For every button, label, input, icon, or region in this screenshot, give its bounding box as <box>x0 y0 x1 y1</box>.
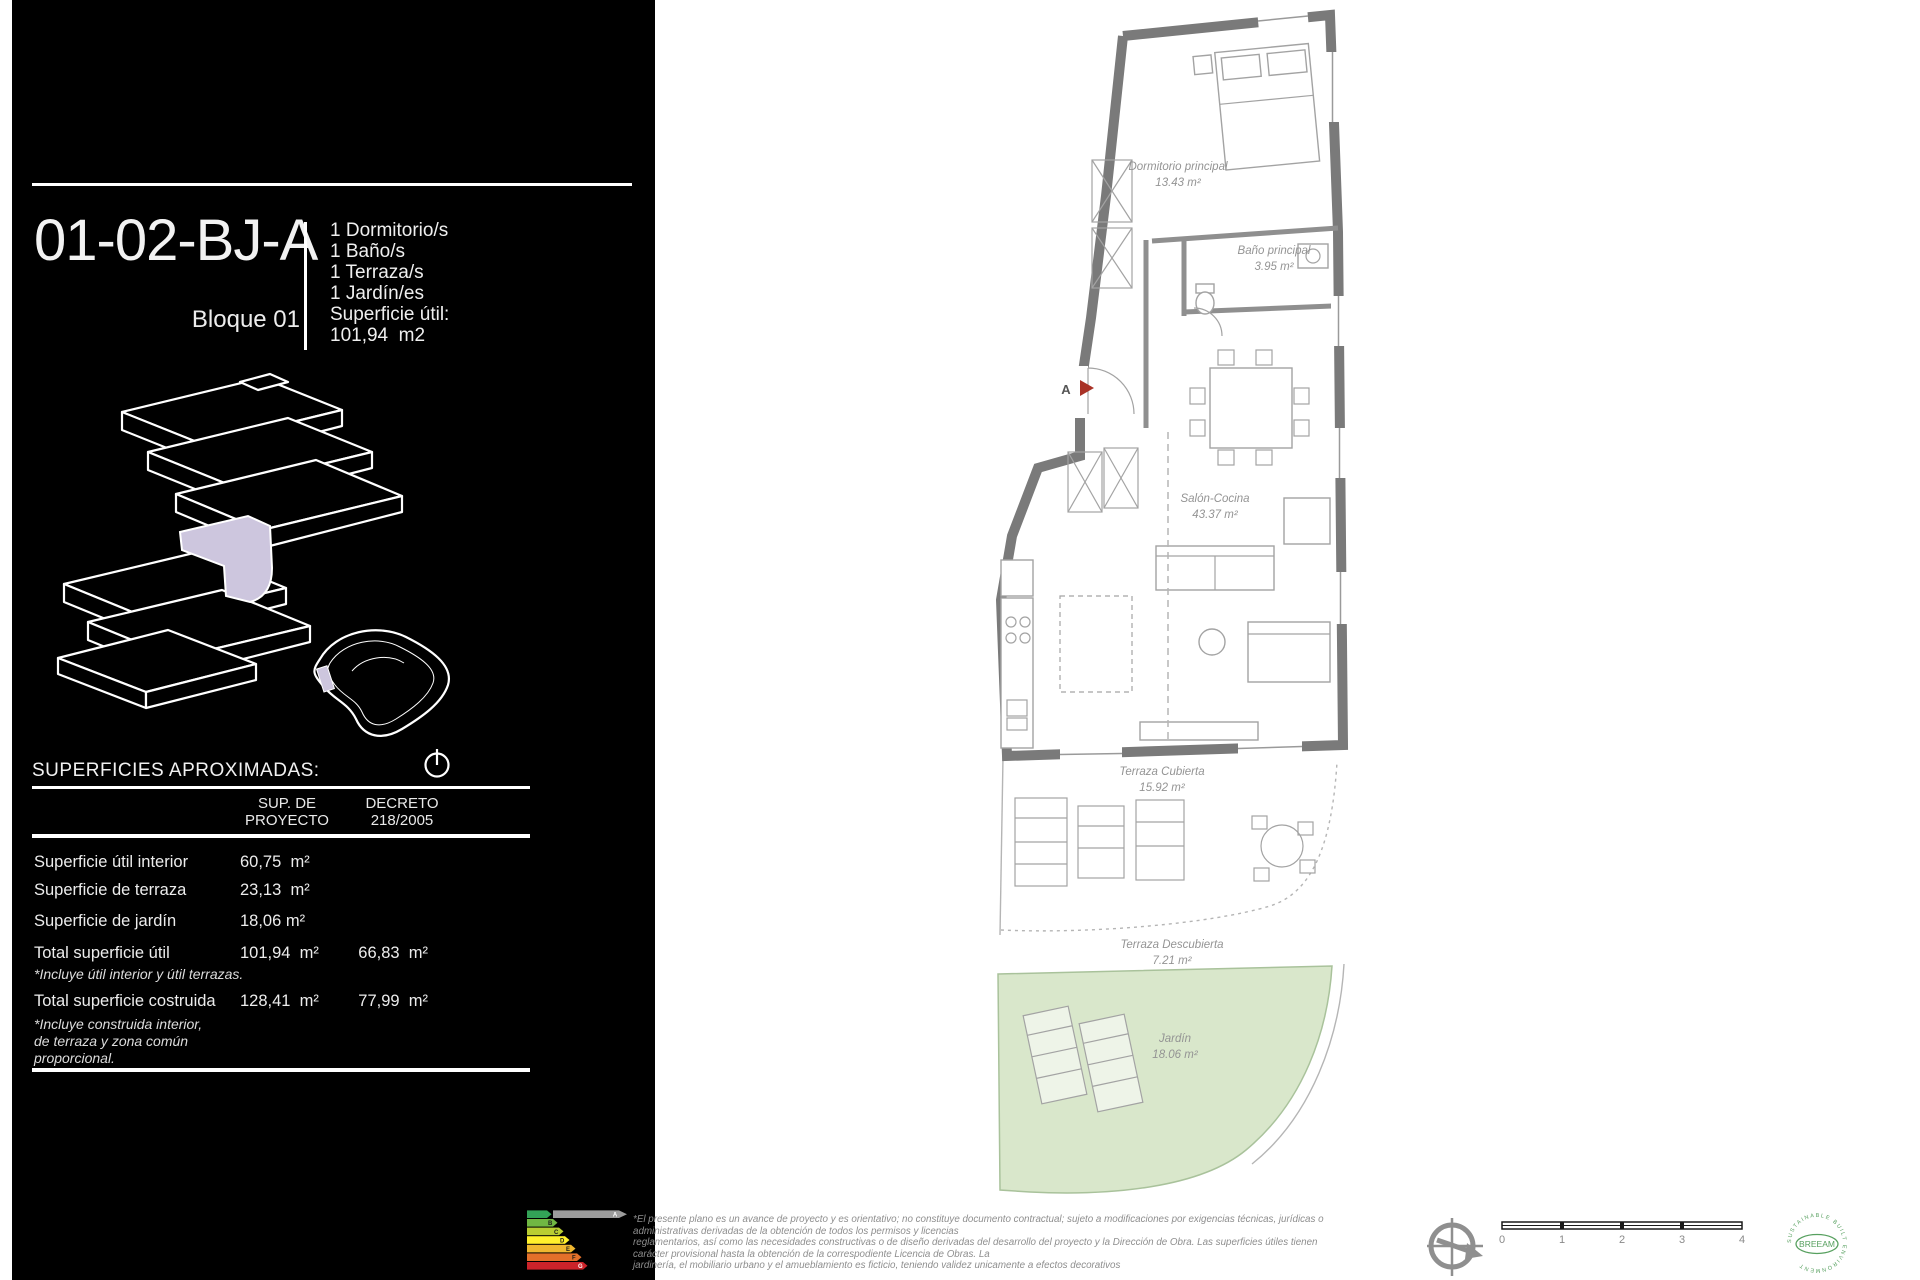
energy-letter: C <box>554 1230 559 1236</box>
row-label: Superficie útil interior <box>34 853 188 872</box>
scale-tick: 4 <box>1739 1234 1745 1246</box>
scale-tick: 2 <box>1619 1234 1625 1246</box>
plan-sheet: 01-02-BJ-A 1 Dormitorio/s 1 Baño/s 1 Ter… <box>0 0 1920 1280</box>
energy-letter: E <box>566 1247 570 1253</box>
col-header-decreto-line1: DECRETO <box>347 795 457 812</box>
col-header-decreto-line2: 218/2005 <box>347 812 457 829</box>
room-label: Dormitorio principal <box>1128 161 1228 173</box>
room-area: 15.92 m² <box>1139 782 1186 794</box>
disclaimer-line: reglamentarios, así como las necesidades… <box>633 1237 1423 1249</box>
col-header-decreto: DECRETO 218/2005 <box>347 795 457 829</box>
row-footnote: de terraza y zona común <box>34 1033 188 1050</box>
row-decreto-value: 77,99 m² <box>342 992 428 1011</box>
scale-bar: 0 1 2 3 4 <box>1496 1218 1756 1248</box>
info-panel: 01-02-BJ-A 1 Dormitorio/s 1 Baño/s 1 Ter… <box>12 0 655 1280</box>
rating-letter: A <box>613 1213 618 1219</box>
row-footnote: *Incluye construida interior, <box>34 1016 202 1033</box>
room-area: 13.43 m² <box>1155 177 1202 189</box>
table-rule-header <box>32 834 530 838</box>
scale-tick: 3 <box>1679 1234 1685 1246</box>
usable-area-value: 101,94 m2 <box>330 325 449 346</box>
north-power-icon <box>420 746 454 780</box>
room-area: 3.95 m² <box>1255 261 1295 273</box>
disclaimer-line: *El presente plano es un avance de proye… <box>633 1214 1423 1226</box>
row-label: Superficie de terraza <box>34 881 186 900</box>
breeam-logo: SUSTAINABLE BUILT ENVIRONMENT BREEAM <box>1782 1208 1852 1278</box>
room-label: Terraza Descubierta <box>1120 939 1223 951</box>
disclaimer-line: jardinería, el mobiliario urbano y el am… <box>633 1260 1423 1272</box>
breeam-label: BREEAM <box>1799 1239 1835 1249</box>
terrace-furniture <box>1015 798 1315 886</box>
entry-label: A <box>1061 382 1071 397</box>
energy-rating-icon: B C D E F G A <box>527 1210 642 1274</box>
site-plan-outline <box>292 615 467 750</box>
energy-letter: B <box>548 1221 553 1227</box>
row-label: Total superficie útil <box>34 944 170 963</box>
floor-plan: A <box>960 0 1920 1280</box>
table-rule-bottom <box>32 1068 530 1072</box>
room-area: 18.06 m² <box>1152 1049 1199 1061</box>
row-proyecto-value: 18,06 m² <box>240 912 305 931</box>
row-footnote: proporcional. <box>34 1050 115 1067</box>
row-label: Superficie de jardín <box>34 912 176 931</box>
dining-set <box>1190 350 1309 465</box>
scale-tick: 0 <box>1499 1234 1505 1246</box>
title-divider <box>304 222 307 350</box>
surfaces-heading: SUPERFICIES APROXIMADAS: <box>32 760 320 782</box>
col-header-proyecto: SUP. DE PROYECTO <box>227 795 347 829</box>
site-highlighted-unit <box>317 666 335 692</box>
room-area: 7.21 m² <box>1153 955 1193 967</box>
room-area: 43.37 m² <box>1192 509 1239 521</box>
block-label: Bloque 01 <box>32 306 300 334</box>
room-label: Salón-Cocina <box>1180 493 1249 505</box>
terrace-edge-left <box>1000 757 1003 935</box>
row-proyecto-value: 60,75 m² <box>240 853 310 872</box>
col-header-proyecto-line1: SUP. DE <box>227 795 347 812</box>
row-footnote: *Incluye útil interior y útil terrazas. <box>34 966 243 983</box>
table-rule-top <box>32 786 530 789</box>
col-header-proyecto-line2: PROYECTO <box>227 812 347 829</box>
row-proyecto-value: 128,41 m² <box>240 992 319 1011</box>
entry-door-swing <box>1088 368 1134 414</box>
feature-gardens: 1 Jardín/es <box>330 283 449 304</box>
row-proyecto-value: 101,94 m² <box>240 944 319 963</box>
feature-bedrooms: 1 Dormitorio/s <box>330 220 449 241</box>
usable-area-label: Superficie útil: <box>330 304 449 325</box>
scale-tick: 1 <box>1559 1234 1565 1246</box>
row-decreto-value: 66,83 m² <box>342 944 428 963</box>
feature-baths: 1 Baño/s <box>330 241 449 262</box>
row-proyecto-value: 23,13 m² <box>240 881 310 900</box>
north-compass-icon <box>1425 1210 1495 1280</box>
unit-features: 1 Dormitorio/s 1 Baño/s 1 Terraza/s 1 Ja… <box>330 220 449 346</box>
top-divider <box>32 183 632 186</box>
disclaimer-line: carácter provisional hasta la obtención … <box>633 1249 1423 1261</box>
row-label: Total superficie costruida <box>34 992 216 1011</box>
room-label: Jardín <box>1158 1033 1191 1045</box>
room-label: Baño principal <box>1238 245 1311 257</box>
energy-letter: D <box>560 1238 565 1244</box>
feature-terraces: 1 Terraza/s <box>330 262 449 283</box>
disclaimer-line: administrativas derivadas de la obtenció… <box>633 1226 1423 1238</box>
legal-disclaimer: *El presente plano es un avance de proye… <box>633 1214 1423 1272</box>
bathroom-fixtures <box>1194 244 1328 336</box>
energy-letter: G <box>578 1264 583 1270</box>
room-label: Terraza Cubierta <box>1119 766 1204 778</box>
bed <box>1193 44 1320 173</box>
energy-letter: F <box>572 1256 576 1262</box>
unit-code: 01-02-BJ-A <box>34 212 317 270</box>
kitchen <box>1001 560 1132 748</box>
